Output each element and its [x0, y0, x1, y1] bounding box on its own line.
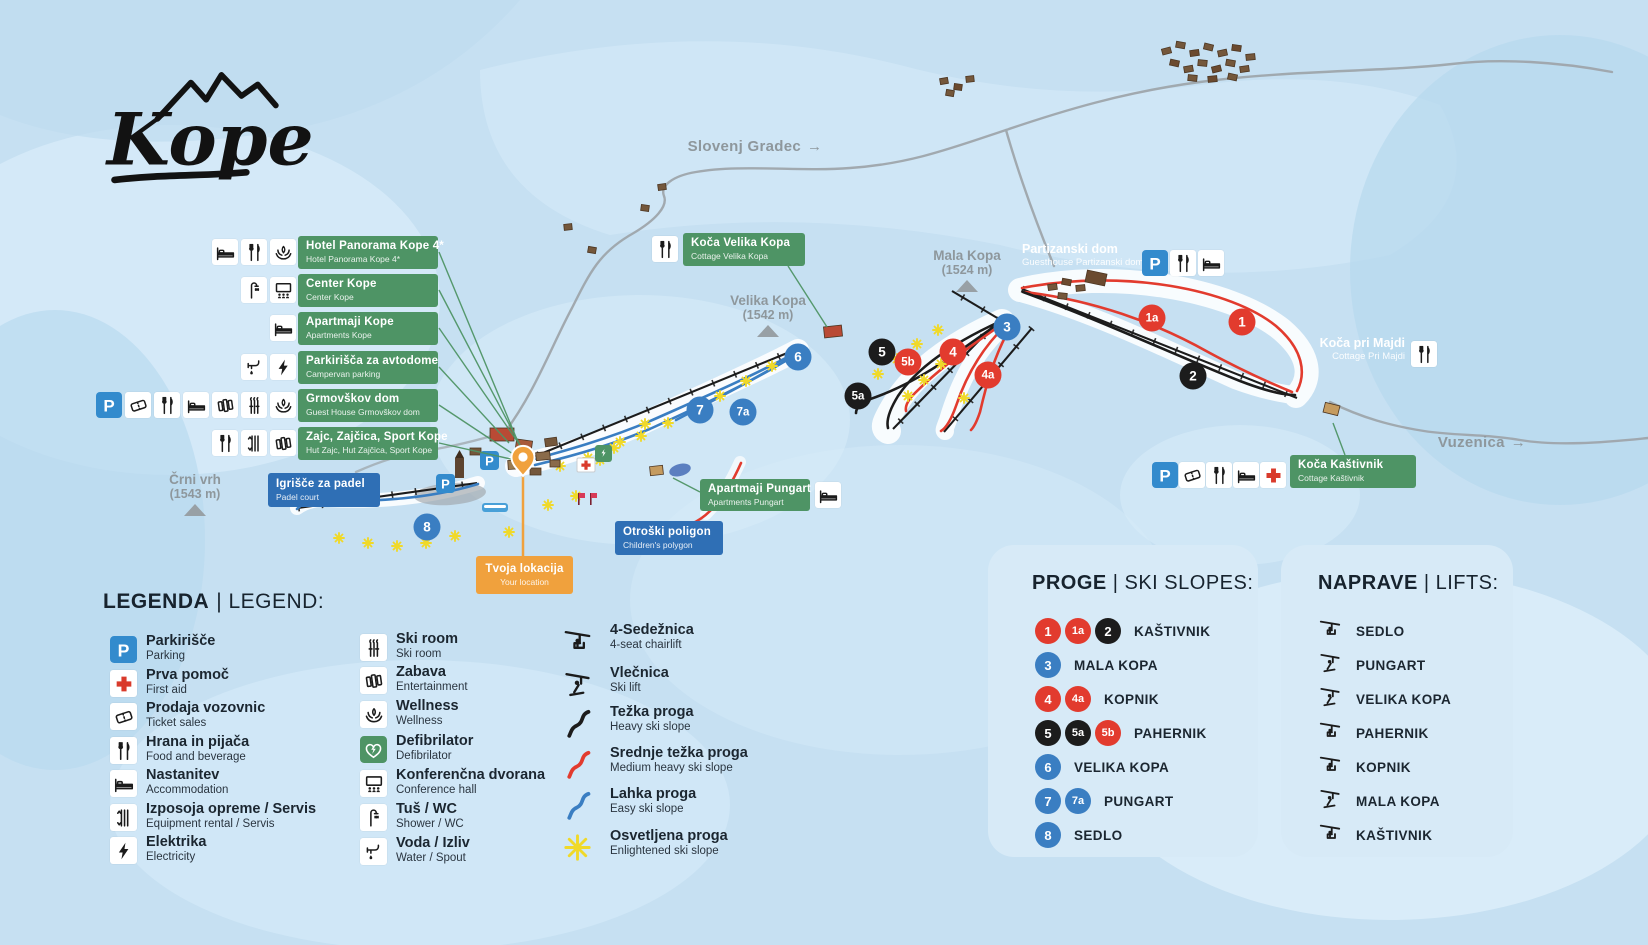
legend-item-1-4: Konferenčna dvoranaConference hall: [396, 768, 545, 798]
label-overlay: PROGE| SKI SLOPES:NAPRAVE| LIFTS:Hotel P…: [0, 0, 1648, 945]
slope-badge-6: 6: [1035, 754, 1061, 780]
ticket-icon: [113, 706, 135, 728]
legend-item-en: Shower / WC: [396, 818, 464, 832]
shower-icon: [363, 807, 385, 829]
parking-icon: P: [1142, 250, 1168, 276]
info-label-title: Zajc, Zajčica, Sport Kope: [306, 431, 430, 445]
peak-elevation: (1524 m): [897, 263, 1037, 277]
site-title: Igrišče za padel: [276, 478, 372, 492]
entertainment-icon: [363, 670, 385, 692]
map-marker-3: 3: [994, 314, 1021, 341]
peak-triangle-icon: [184, 504, 206, 516]
svg-text:P: P: [1159, 467, 1170, 486]
legend-item-2-0: 4-Sedežnica4-seat chairlift: [610, 623, 694, 653]
peak-elevation: (1542 m): [698, 308, 838, 322]
panel-title-en: | LIFTS:: [1424, 572, 1499, 594]
legend-item-1-2: WellnessWellness: [396, 699, 459, 729]
peak-name: Velika Kopa: [698, 293, 838, 308]
info-label-subtitle: Hut Zajc, Hut Zajčica, Sport Kope: [306, 445, 430, 456]
electric-icon: [113, 840, 135, 862]
bed-icon-tile: [815, 482, 841, 508]
conference-icon-tile: [360, 770, 387, 797]
ticket-icon: [128, 395, 149, 416]
legend-item-sl: Tuš / WC: [396, 802, 464, 818]
chairlift-icon: [1317, 820, 1343, 846]
food-icon-tile: [1411, 341, 1437, 367]
shower-icon: [244, 280, 265, 301]
ticket-icon-tile: [125, 392, 151, 418]
info-label-5: Zajc, Zajčica, Sport KopeHut Zajc, Hut Z…: [298, 427, 438, 460]
site-title: Apartmaji Pungart: [708, 483, 802, 497]
bed-icon-tile: [1233, 462, 1259, 488]
parking-icon-tile: P: [96, 392, 122, 418]
slope-row-VELIKA KOPA: 6VELIKA KOPA: [1035, 754, 1169, 780]
direction-text: Vuzenica: [1438, 434, 1505, 451]
chairlift-icon: [1317, 718, 1343, 744]
skilift-icon: [561, 668, 594, 701]
slope-badge-5: 5: [1035, 720, 1061, 746]
slope-badge-4: 4: [1035, 686, 1061, 712]
slope-name: VELIKA KOPA: [1074, 760, 1169, 775]
star-icon: [561, 831, 594, 864]
site-label-partizanski: Partizanski domGuesthouse Partizanski do…: [1022, 242, 1143, 268]
bed-icon: [273, 318, 294, 339]
legend-item-en: 4-seat chairlift: [610, 639, 694, 653]
legend-item-sl: Vlečnica: [610, 666, 669, 682]
site-subtitle: Apartments Pungart: [708, 497, 802, 508]
food-icon-tile: [154, 392, 180, 418]
legend-item-en: Water / Spout: [396, 852, 470, 866]
legend-item-sl: 4-Sedežnica: [610, 623, 694, 639]
wellness-icon: [363, 704, 385, 726]
electric-icon: [273, 357, 294, 378]
panel-title-en: | SKI SLOPES:: [1113, 572, 1254, 594]
food-icon: [244, 242, 265, 263]
chairlift-icon: [1317, 718, 1343, 749]
slope-row-KOPNIK: 44aKOPNIK: [1035, 686, 1159, 712]
food-icon: [1209, 465, 1230, 486]
legend-item-en: Entertainment: [396, 681, 468, 695]
site-subtitle: Your location: [500, 577, 549, 588]
legend-item-0-1: Prva pomočFirst aid: [146, 668, 229, 698]
conference-icon-tile: [270, 277, 296, 303]
legend-item-en: Electricity: [146, 851, 206, 865]
firstaid-icon-tile: [1260, 462, 1286, 488]
legend-item-en: Wellness: [396, 715, 459, 729]
legend-title-en: | LEGEND:: [216, 590, 324, 613]
chairlift-icon: [561, 625, 594, 658]
site-subtitle: Guesthouse Partizanski dom: [1022, 257, 1143, 268]
slope-row-MALA KOPA: 3MALA KOPA: [1035, 652, 1158, 678]
bed-icon-tile: [1198, 250, 1224, 276]
site-title: Koča Kaštivnik: [1298, 459, 1408, 473]
slope-name: SEDLO: [1074, 828, 1123, 843]
site-subtitle: Padel court: [276, 492, 372, 503]
site-label-majdi: Koča pri MajdiCottage Pri Majdi: [1255, 336, 1405, 362]
map-marker-7: 7: [687, 397, 714, 424]
site-subtitle: Children's polygon: [623, 540, 715, 551]
panel-title-sl: PROGE: [1032, 572, 1107, 594]
firstaid-icon-tile: [110, 670, 137, 697]
defibrillator-icon: [360, 736, 387, 763]
site-label-apartmaji-pungart: Apartmaji PungartApartments Pungart: [700, 479, 810, 511]
legend-item-sl: Lahka proga: [610, 787, 696, 803]
site-title: Koča pri Majdi: [1255, 336, 1405, 351]
slope-name: KAŠTIVNIK: [1134, 624, 1210, 639]
legend-item-0-6: ElektrikaElectricity: [146, 835, 206, 865]
legend-item-en: Conference hall: [396, 784, 545, 798]
rental-icon-tile: [241, 430, 267, 456]
lift-name: PUNGART: [1356, 658, 1426, 673]
site-title: Tvoja lokacija: [485, 563, 563, 577]
bed-icon: [186, 395, 207, 416]
map-marker-5a: 5a: [845, 383, 872, 410]
marker-number: 5b: [901, 356, 914, 368]
slope-row-PAHERNIK: 55a5bPAHERNIK: [1035, 720, 1207, 746]
map-marker-6: 6: [785, 344, 812, 371]
info-label-subtitle: Hotel Panorama Kope 4*: [306, 254, 430, 265]
legend-item-2-4: Lahka progaEasy ski slope: [610, 787, 696, 817]
water-icon: [244, 357, 265, 378]
legend-item-en: Enlightened ski slope: [610, 845, 728, 859]
skiroom-icon-tile: [241, 392, 267, 418]
map-marker-1: 1: [1229, 309, 1256, 336]
slope-black-icon: [561, 707, 594, 740]
bed-icon: [818, 485, 839, 506]
legend-item-sl: Prodaja vozovnic: [146, 701, 265, 717]
legend-item-sl: Defibrilator: [396, 734, 473, 750]
slope-badge-3: 3: [1035, 652, 1061, 678]
conference-icon: [273, 280, 294, 301]
wellness-icon-tile: [270, 392, 296, 418]
slope-badge-5a: 5a: [1065, 720, 1091, 746]
skilift-icon: [1317, 650, 1343, 681]
wellness-icon: [273, 395, 294, 416]
water-icon-tile: [241, 354, 267, 380]
site-subtitle: Cottage Pri Majdi: [1255, 351, 1405, 362]
legend-glyph-chairlift: [561, 625, 594, 658]
bed-icon: [1236, 465, 1257, 486]
marker-number: 2: [1189, 369, 1197, 384]
info-label-3: Parkirišča za avtodomeCampervan parking: [298, 351, 438, 384]
legend-item-en: First aid: [146, 684, 229, 698]
marker-number: 1a: [1146, 312, 1159, 324]
legend-title: LEGENDA| LEGEND:: [103, 590, 324, 614]
slope-badge-2: 2: [1095, 618, 1121, 644]
marker-number: 6: [794, 350, 802, 365]
entertainment-icon: [215, 395, 236, 416]
site-label-koca-kastivnik: Koča KaštivnikCottage Kaštivnik: [1290, 455, 1416, 488]
bed-icon: [215, 242, 236, 263]
marker-number: 7a: [737, 406, 750, 418]
info-label-title: Parkirišča za avtodome: [306, 355, 430, 369]
food-icon: [655, 239, 676, 260]
site-subtitle: Cottage Velika Kopa: [691, 251, 797, 262]
info-label-4: Grmovškov domGuest House Grmovškov dom: [298, 389, 438, 422]
food-icon: [1173, 253, 1194, 274]
parking-icon: P: [110, 636, 137, 663]
slope-row-SEDLO: 8SEDLO: [1035, 822, 1123, 848]
info-label-subtitle: Center Kope: [306, 292, 430, 303]
ticket-icon-tile: [1179, 462, 1205, 488]
legend-glyph-slope-black: [561, 707, 594, 740]
parking-icon: P: [1152, 462, 1178, 488]
entertainment-icon-tile: [360, 667, 387, 694]
skiroom-icon-tile: [360, 634, 387, 661]
marker-number: 8: [423, 520, 431, 535]
lift-row-VELIKA KOPA: VELIKA KOPA: [1317, 685, 1451, 713]
legend-item-0-2: Prodaja vozovnicTicket sales: [146, 701, 265, 731]
skilift-icon: [1317, 786, 1343, 817]
shower-icon-tile: [241, 277, 267, 303]
legend-item-en: Ticket sales: [146, 717, 265, 731]
chairlift-icon: [1317, 616, 1343, 642]
legend-item-sl: Srednje težka proga: [610, 746, 748, 762]
skilift-icon: [1317, 786, 1343, 812]
slope-blue-icon: [561, 789, 594, 822]
peak-name: Mala Kopa: [897, 248, 1037, 263]
slope-red-icon: [561, 748, 594, 781]
legend-item-en: Defibrilator: [396, 750, 473, 764]
map-marker-4a: 4a: [975, 362, 1002, 389]
ticket-icon-tile: [110, 703, 137, 730]
legend-item-sl: Osvetljena proga: [610, 829, 728, 845]
slope-badge-1a: 1a: [1065, 618, 1091, 644]
direction-label-0: Slovenj Gradec→: [645, 138, 865, 155]
legend-item-2-2: Težka progaHeavy ski slope: [610, 705, 694, 735]
legend-item-sl: Ski room: [396, 632, 458, 648]
info-label-2: Apartmaji KopeApartments Kope: [298, 312, 438, 345]
parking-icon: P: [96, 392, 122, 418]
info-label-title: Apartmaji Kope: [306, 316, 430, 330]
conference-icon: [363, 773, 385, 795]
legend-item-1-1: ZabavaEntertainment: [396, 665, 468, 695]
map-marker-8: 8: [414, 514, 441, 541]
direction-label-1: Vuzenica→: [1372, 434, 1592, 451]
peak-0: Mala Kopa(1524 m): [897, 248, 1037, 292]
lift-name: PAHERNIK: [1356, 726, 1429, 741]
direction-text: Slovenj Gradec: [688, 138, 801, 155]
legend-item-sl: Prva pomoč: [146, 668, 229, 684]
slope-name: KOPNIK: [1104, 692, 1159, 707]
legend-item-sl: Izposoja opreme / Servis: [146, 802, 316, 818]
legend-item-1-6: Voda / IzlivWater / Spout: [396, 836, 470, 866]
rental-icon: [244, 433, 265, 454]
arrow-right-icon: →: [807, 138, 822, 155]
info-label-1: Center KopeCenter Kope: [298, 274, 438, 307]
chairlift-icon: [1317, 752, 1343, 783]
food-icon-tile: [241, 239, 267, 265]
legend-item-sl: Zabava: [396, 665, 468, 681]
rental-icon: [113, 807, 135, 829]
ticket-icon: [1182, 465, 1203, 486]
entertainment-icon-tile: [212, 392, 238, 418]
slope-badge-7a: 7a: [1065, 788, 1091, 814]
skilift-icon: [1317, 650, 1343, 676]
legend-item-en: Easy ski slope: [610, 803, 696, 817]
legend-item-sl: Voda / Izliv: [396, 836, 470, 852]
lift-row-KOPNIK: KOPNIK: [1317, 753, 1411, 781]
slope-row-PUNGART: 77aPUNGART: [1035, 788, 1174, 814]
marker-number: 7: [696, 403, 704, 418]
arrow-right-icon: →: [1511, 434, 1526, 451]
bed-icon-tile: [183, 392, 209, 418]
slope-badge-7: 7: [1035, 788, 1061, 814]
legend-item-0-3: Hrana in pijačaFood and beverage: [146, 735, 249, 765]
info-label-title: Center Kope: [306, 278, 430, 292]
site-title: Otroški poligon: [623, 526, 715, 540]
info-label-subtitle: Apartments Kope: [306, 330, 430, 341]
legend-item-en: Medium heavy ski slope: [610, 762, 748, 776]
legend-title-sl: LEGENDA: [103, 590, 209, 613]
skiroom-icon: [244, 395, 265, 416]
legend-item-en: Ski lift: [610, 682, 669, 696]
legend-item-0-0: ParkiriščeParking: [146, 634, 215, 664]
marker-number: 1: [1238, 315, 1246, 330]
food-icon: [1414, 344, 1435, 365]
skiroom-icon: [363, 637, 385, 659]
legend-item-2-5: Osvetljena progaEnlightened ski slope: [610, 829, 728, 859]
lift-name: KAŠTIVNIK: [1356, 828, 1432, 843]
entertainment-icon: [273, 433, 294, 454]
legend-item-1-5: Tuš / WCShower / WC: [396, 802, 464, 832]
parking-icon-tile: P: [1152, 462, 1178, 488]
bed-icon: [113, 773, 135, 795]
kope-ski-resort-map: PP Kope PROGE| SKI SLOPES:NAPRAVE| LIFTS…: [0, 0, 1648, 945]
firstaid-icon: [113, 673, 135, 695]
legend-glyph-slope-red: [561, 748, 594, 781]
legend-item-1-0: Ski roomSki room: [396, 632, 458, 662]
info-label-title: Grmovškov dom: [306, 393, 430, 407]
legend-item-sl: Hrana in pijača: [146, 735, 249, 751]
legend-item-sl: Parkirišče: [146, 634, 215, 650]
legend-glyph-skilift: [561, 668, 594, 701]
svg-text:P: P: [118, 640, 130, 660]
skilift-icon: [1317, 684, 1343, 710]
rental-icon-tile: [110, 804, 137, 831]
site-label-tvoja-lokacija: Tvoja lokacijaYour location: [476, 556, 573, 594]
peak-name: Črni vrh: [125, 472, 265, 487]
lift-name: KOPNIK: [1356, 760, 1411, 775]
parking-icon-tile: P: [110, 636, 137, 663]
food-icon: [113, 740, 135, 762]
food-icon-tile: [212, 430, 238, 456]
marker-number: 5a: [852, 390, 865, 402]
legend-item-2-3: Srednje težka progaMedium heavy ski slop…: [610, 746, 748, 776]
peak-triangle-icon: [757, 325, 779, 337]
bed-icon-tile: [270, 315, 296, 341]
lift-name: VELIKA KOPA: [1356, 692, 1451, 707]
bed-icon-tile: [110, 770, 137, 797]
site-title: Koča Velika Kopa: [691, 237, 797, 251]
marker-number: 5: [878, 345, 886, 360]
lift-row-MALA KOPA: MALA KOPA: [1317, 787, 1440, 815]
food-icon-tile: [1206, 462, 1232, 488]
chairlift-icon: [1317, 752, 1343, 778]
info-label-title: Hotel Panorama Kope 4*: [306, 240, 430, 254]
map-marker-5: 5: [869, 339, 896, 366]
legend-item-sl: Konferenčna dvorana: [396, 768, 545, 784]
slope-name: PUNGART: [1104, 794, 1174, 809]
ski-slopes-panel-title: PROGE| SKI SLOPES:: [1032, 572, 1253, 595]
shower-icon-tile: [360, 804, 387, 831]
peak-1: Velika Kopa(1542 m): [698, 293, 838, 337]
map-marker-1a: 1a: [1139, 305, 1166, 332]
info-label-subtitle: Campervan parking: [306, 369, 430, 380]
svg-text:P: P: [1149, 255, 1160, 274]
peak-triangle-icon: [956, 280, 978, 292]
slope-row-KAŠTIVNIK: 11a2KAŠTIVNIK: [1035, 618, 1210, 644]
legend-item-sl: Težka proga: [610, 705, 694, 721]
svg-text:P: P: [103, 397, 114, 416]
site-subtitle: Cottage Kaštivnik: [1298, 473, 1408, 484]
site-label-igrisce-za-padel: Igrišče za padelPadel court: [268, 473, 380, 507]
skilift-icon: [1317, 684, 1343, 715]
firstaid-icon: [1263, 465, 1284, 486]
legend-item-en: Heavy ski slope: [610, 721, 694, 735]
defib-icon-tile: [360, 736, 387, 763]
marker-number: 3: [1003, 320, 1011, 335]
legend-item-sl: Wellness: [396, 699, 459, 715]
slope-badge-4a: 4a: [1065, 686, 1091, 712]
legend-item-sl: Elektrika: [146, 835, 206, 851]
water-icon-tile: [360, 838, 387, 865]
lift-row-KAŠTIVNIK: KAŠTIVNIK: [1317, 821, 1432, 849]
food-icon-tile: [652, 236, 678, 262]
peak-elevation: (1543 m): [125, 487, 265, 501]
site-label-otroski-poligon: Otroški poligonChildren's polygon: [615, 521, 723, 555]
bed-icon-tile: [212, 239, 238, 265]
legend-item-en: Accommodation: [146, 784, 228, 798]
legend-item-en: Equipment rental / Servis: [146, 818, 316, 832]
lift-row-SEDLO: SEDLO: [1317, 617, 1405, 645]
legend-glyph-star: [561, 831, 594, 864]
map-marker-5b: 5b: [895, 349, 922, 376]
food-icon-tile: [1170, 250, 1196, 276]
wellness-icon-tile: [270, 239, 296, 265]
slope-badge-5b: 5b: [1095, 720, 1121, 746]
map-marker-2: 2: [1180, 363, 1207, 390]
legend-item-en: Food and beverage: [146, 751, 249, 765]
marker-number: 4: [949, 345, 957, 360]
lift-name: SEDLO: [1356, 624, 1405, 639]
lift-row-PUNGART: PUNGART: [1317, 651, 1426, 679]
lift-row-PAHERNIK: PAHERNIK: [1317, 719, 1429, 747]
site-title: Partizanski dom: [1022, 242, 1143, 257]
food-icon-tile: [110, 737, 137, 764]
wellness-icon: [273, 242, 294, 263]
legend-item-sl: Nastanitev: [146, 768, 228, 784]
info-label-subtitle: Guest House Grmovškov dom: [306, 407, 430, 418]
electric-icon-tile: [110, 837, 137, 864]
legend-item-0-4: NastanitevAccommodation: [146, 768, 228, 798]
slope-name: PAHERNIK: [1134, 726, 1207, 741]
legend-item-0-5: Izposoja opreme / ServisEquipment rental…: [146, 802, 316, 832]
legend-item-2-1: VlečnicaSki lift: [610, 666, 669, 696]
electric-icon-tile: [270, 354, 296, 380]
map-marker-4: 4: [940, 339, 967, 366]
slope-badge-1: 1: [1035, 618, 1061, 644]
chairlift-icon: [1317, 616, 1343, 647]
map-marker-7a: 7a: [730, 399, 757, 426]
site-label-koca-velika-kopa: Koča Velika KopaCottage Velika Kopa: [683, 233, 805, 266]
lift-name: MALA KOPA: [1356, 794, 1440, 809]
panel-title-sl: NAPRAVE: [1318, 572, 1418, 594]
food-icon: [215, 433, 236, 454]
legend-glyph-slope-blue: [561, 789, 594, 822]
wellness-icon-tile: [360, 701, 387, 728]
bed-icon: [1201, 253, 1222, 274]
